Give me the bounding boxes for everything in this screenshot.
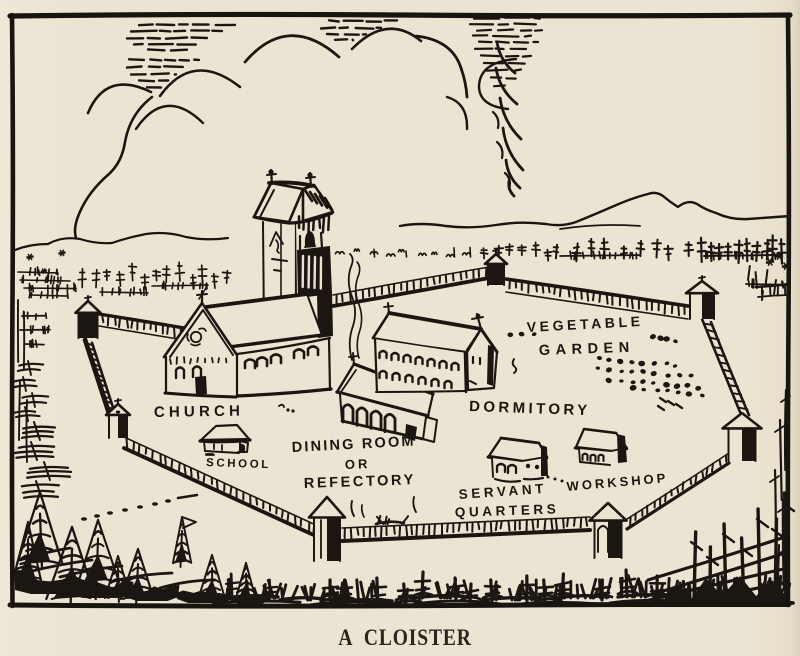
svg-text:OR: OR (345, 456, 371, 472)
svg-text:CHURCH: CHURCH (154, 402, 244, 421)
svg-text:SCHOOL: SCHOOL (206, 457, 271, 471)
svg-text:GARDEN: GARDEN (539, 340, 635, 359)
svg-text:A CLOISTER: A CLOISTER (338, 625, 471, 651)
